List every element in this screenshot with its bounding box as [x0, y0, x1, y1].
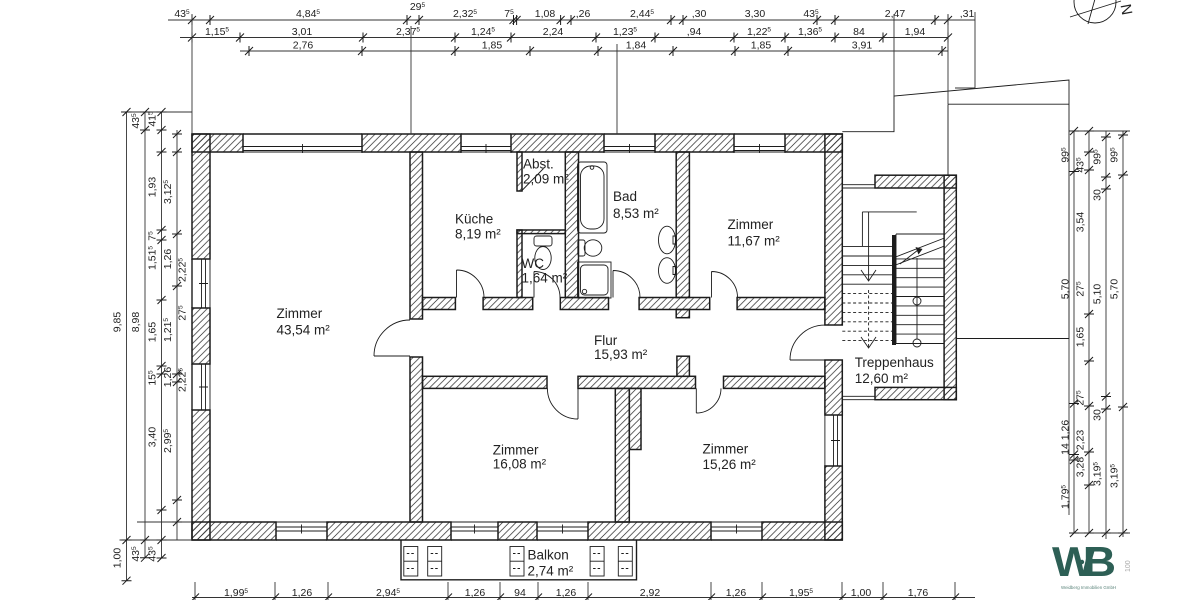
svg-text:1,26: 1,26 — [726, 587, 747, 599]
svg-text:1,26: 1,26 — [556, 587, 577, 599]
svg-text:Küche: Küche — [455, 212, 493, 227]
svg-text:11,67 m²: 11,67 m² — [728, 234, 781, 249]
svg-text:Zimmer: Zimmer — [493, 443, 539, 458]
svg-text:Zimmer: Zimmer — [277, 306, 323, 321]
svg-text:,94: ,94 — [687, 26, 702, 38]
svg-text:1,00: 1,00 — [112, 548, 124, 569]
svg-text:8,53 m²: 8,53 m² — [613, 206, 659, 221]
svg-text:14: 14 — [1060, 443, 1072, 455]
svg-text:8,98: 8,98 — [130, 312, 142, 333]
svg-text:15,93 m²: 15,93 m² — [594, 347, 648, 362]
svg-text:1,94: 1,94 — [905, 26, 926, 38]
svg-text:5,70: 5,70 — [1109, 279, 1121, 300]
svg-text:1,93: 1,93 — [147, 177, 159, 198]
svg-text:5,70: 5,70 — [1060, 279, 1072, 300]
svg-text:Bad: Bad — [613, 189, 637, 204]
svg-text:Weidberg Immobilien GmbH: Weidberg Immobilien GmbH — [1061, 585, 1116, 590]
svg-text:16,08 m²: 16,08 m² — [493, 457, 547, 472]
svg-text:Balkon: Balkon — [528, 548, 569, 563]
svg-text:1,65: 1,65 — [147, 322, 159, 343]
svg-text:100: 100 — [1125, 560, 1132, 572]
svg-text:B: B — [1083, 539, 1116, 586]
svg-text:43,54 m²: 43,54 m² — [277, 323, 331, 338]
svg-text:1,00: 1,00 — [851, 587, 872, 599]
svg-text:,31: ,31 — [960, 8, 975, 20]
svg-text:,30: ,30 — [692, 8, 707, 20]
svg-text:3,54: 3,54 — [1075, 212, 1087, 233]
svg-text:2,23: 2,23 — [1075, 430, 1087, 451]
svg-text:Zimmer: Zimmer — [728, 217, 774, 232]
svg-text:2,76: 2,76 — [293, 39, 314, 51]
svg-text:1,76: 1,76 — [908, 587, 929, 599]
svg-text:3,30: 3,30 — [745, 8, 766, 20]
svg-text:1,26: 1,26 — [292, 587, 313, 599]
svg-text:9,85: 9,85 — [112, 312, 124, 333]
svg-text:3,01: 3,01 — [292, 26, 313, 38]
svg-text:1,64 m²: 1,64 m² — [522, 271, 568, 286]
svg-text:1,85: 1,85 — [751, 39, 772, 51]
svg-text:12,60 m²: 12,60 m² — [855, 371, 909, 386]
svg-text:8,19 m²: 8,19 m² — [455, 227, 501, 242]
svg-text:30: 30 — [1092, 189, 1104, 201]
svg-text:1,26: 1,26 — [465, 587, 486, 599]
svg-text:1,85: 1,85 — [482, 39, 503, 51]
svg-text:WC: WC — [522, 256, 545, 271]
svg-text:2,24: 2,24 — [543, 26, 564, 38]
svg-text:2,74 m²: 2,74 m² — [528, 564, 574, 579]
svg-text:Treppenhaus: Treppenhaus — [855, 355, 934, 370]
svg-text:2,47: 2,47 — [885, 8, 906, 20]
svg-text:1,65: 1,65 — [1075, 327, 1087, 348]
svg-text:5,10: 5,10 — [1092, 284, 1104, 305]
svg-text:1,26: 1,26 — [162, 367, 174, 388]
svg-text:,26: ,26 — [576, 8, 591, 20]
svg-text:Zimmer: Zimmer — [703, 442, 749, 457]
svg-text:3,40: 3,40 — [147, 427, 159, 448]
svg-text:1,08: 1,08 — [535, 8, 556, 20]
svg-text:15,26 m²: 15,26 m² — [703, 457, 757, 472]
svg-text:Flur: Flur — [594, 333, 618, 348]
svg-text:1,26: 1,26 — [1060, 420, 1072, 441]
svg-text:Abst.: Abst. — [523, 157, 554, 172]
svg-text:2,09 m²: 2,09 m² — [523, 172, 569, 187]
svg-text:2,92: 2,92 — [640, 587, 661, 599]
svg-text:94: 94 — [514, 587, 526, 599]
svg-text:1,26: 1,26 — [162, 249, 174, 270]
svg-text:30: 30 — [1092, 409, 1104, 421]
svg-text:3,28: 3,28 — [1075, 457, 1087, 478]
svg-text:84: 84 — [853, 26, 865, 38]
svg-text:1,84: 1,84 — [626, 39, 647, 51]
svg-text:3,91: 3,91 — [852, 39, 873, 51]
